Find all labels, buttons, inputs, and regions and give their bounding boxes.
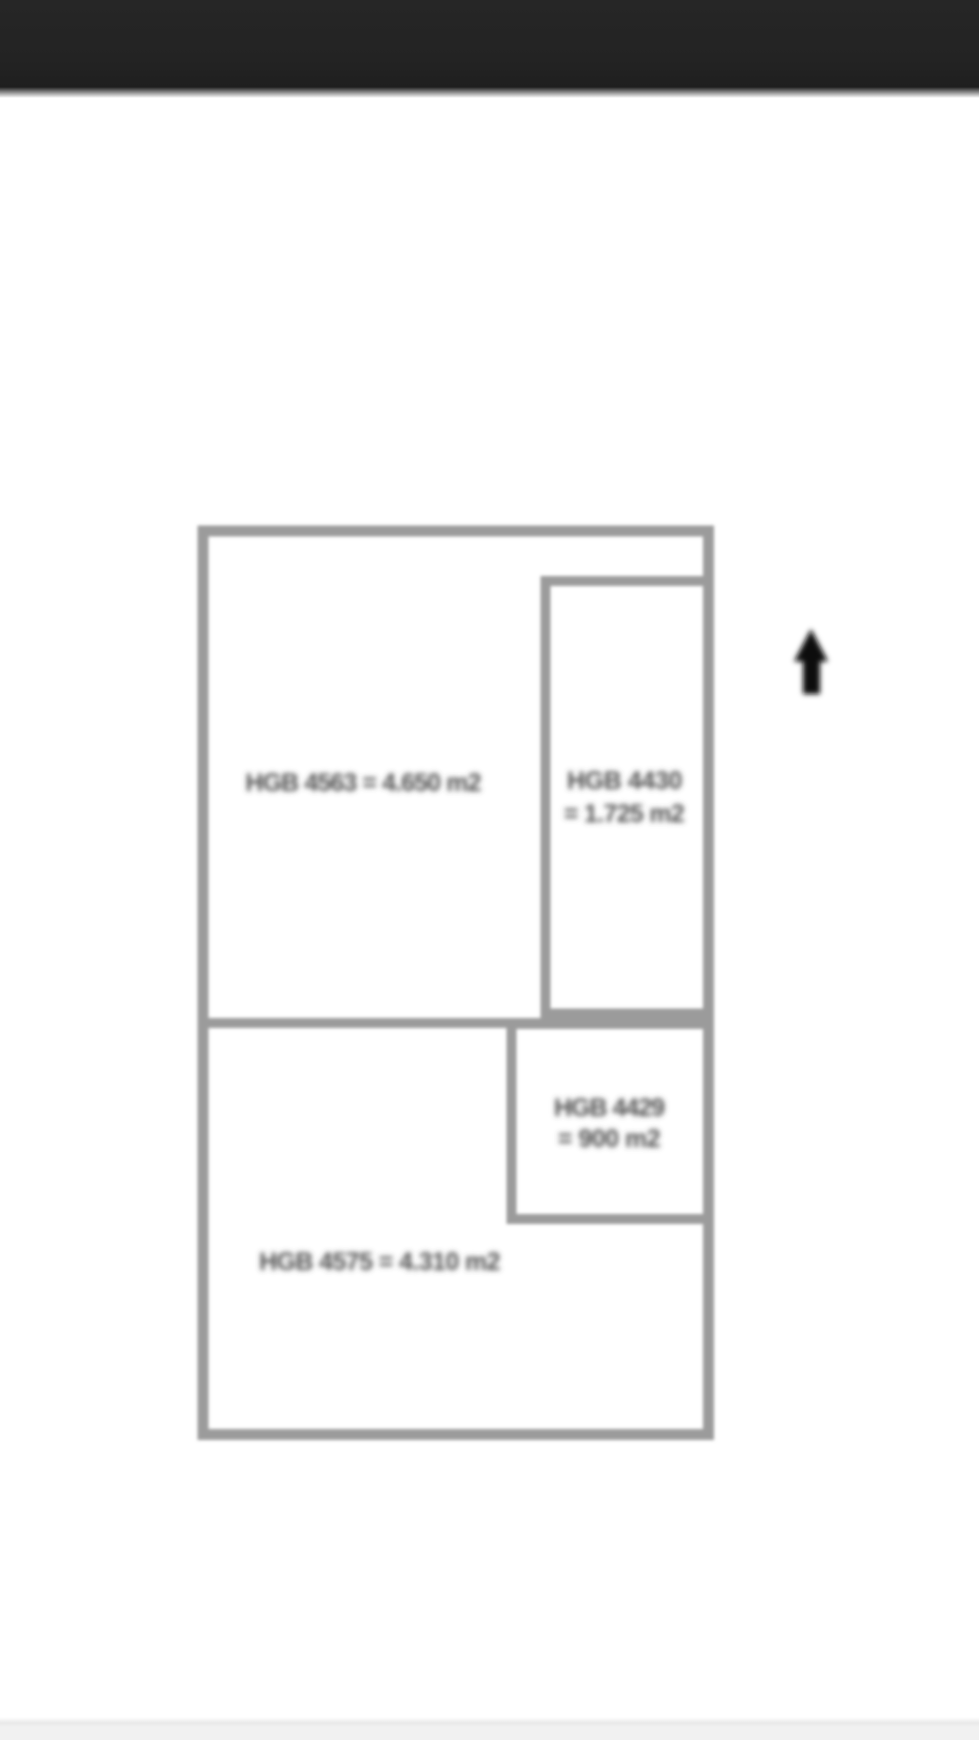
svg-text:= 900 m2: = 900 m2 [558, 1125, 660, 1153]
svg-text:HGB 4575 = 4.310 m2: HGB 4575 = 4.310 m2 [259, 1248, 500, 1276]
svg-text:HGB 4429: HGB 4429 [554, 1094, 664, 1122]
svg-text:HGB 4430: HGB 4430 [567, 767, 682, 795]
svg-text:HGB 4563 = 4.650 m2: HGB 4563 = 4.650 m2 [245, 769, 480, 797]
svg-text:= 1.725 m2: = 1.725 m2 [564, 800, 684, 828]
